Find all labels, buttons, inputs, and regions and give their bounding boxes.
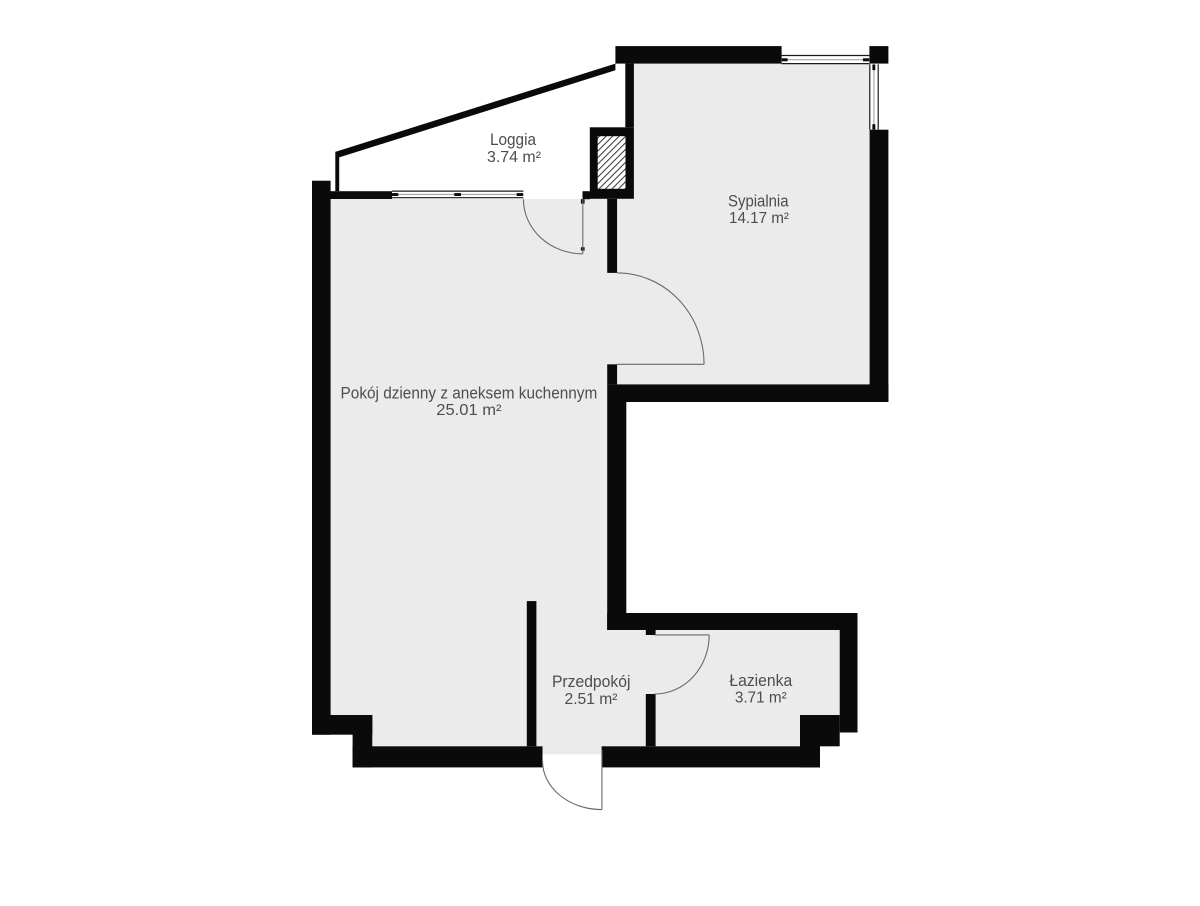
svg-text:Łazienka: Łazienka (729, 671, 792, 690)
svg-text:3.74 m²: 3.74 m² (487, 149, 541, 166)
svg-text:3.71 m²: 3.71 m² (735, 690, 787, 707)
svg-text:25.01 m²: 25.01 m² (436, 402, 501, 419)
svg-text:Sypialnia: Sypialnia (728, 192, 789, 211)
svg-text:14.17 m²: 14.17 m² (729, 210, 789, 227)
svg-text:Pokój dzienny z aneksem kuchen: Pokój dzienny z aneksem kuchennym (341, 384, 598, 403)
svg-text:Loggia: Loggia (490, 130, 536, 149)
svg-text:Przedpokój: Przedpokój (552, 672, 631, 691)
svg-text:2.51 m²: 2.51 m² (565, 691, 618, 708)
